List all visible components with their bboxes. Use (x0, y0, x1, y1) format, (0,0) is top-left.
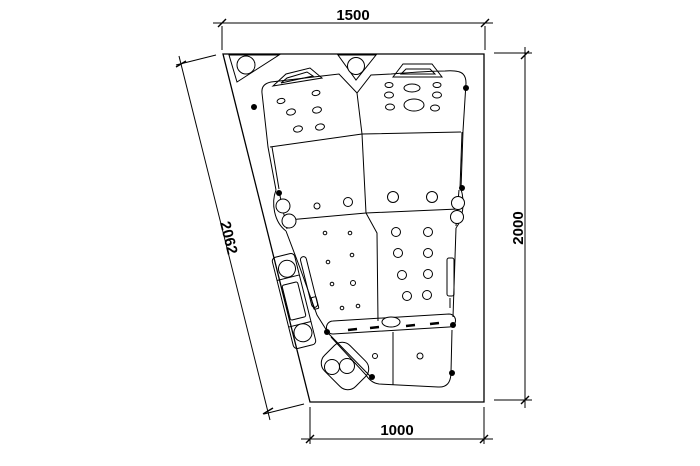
backrest-jets-left (277, 90, 325, 133)
backrest-jets-right (385, 83, 442, 112)
headrest-right (393, 64, 442, 77)
dimension-bottom-value: 1000 (380, 422, 413, 439)
corner-triangle-top-left (229, 55, 279, 82)
dimension-right-value: 2000 (510, 211, 527, 244)
mounting-dots (251, 85, 469, 380)
drain-bar (327, 314, 456, 334)
dimension-bottom: 1000 (301, 407, 493, 444)
pump-access-diamond (317, 338, 374, 395)
dimension-top: 1500 (213, 7, 493, 50)
technical-drawing-svg: 1500 2000 1000 2062 (0, 0, 700, 466)
deck-outline (223, 54, 484, 402)
bathtub-plan-drawing: 1500 2000 1000 2062 (0, 0, 700, 466)
dimension-right: 2000 (494, 47, 532, 408)
dimension-diagonal-value: 2062 (216, 220, 241, 256)
lower-left-air-jets (323, 231, 360, 310)
dimension-diagonal: 2062 (176, 55, 304, 420)
control-panel (271, 253, 316, 350)
jet-pod-right (451, 189, 465, 317)
grab-rail-right (447, 258, 454, 308)
dimension-top-value: 1500 (336, 7, 369, 24)
seat-front-jets (314, 192, 438, 210)
lower-right-jet-grid (392, 228, 433, 301)
